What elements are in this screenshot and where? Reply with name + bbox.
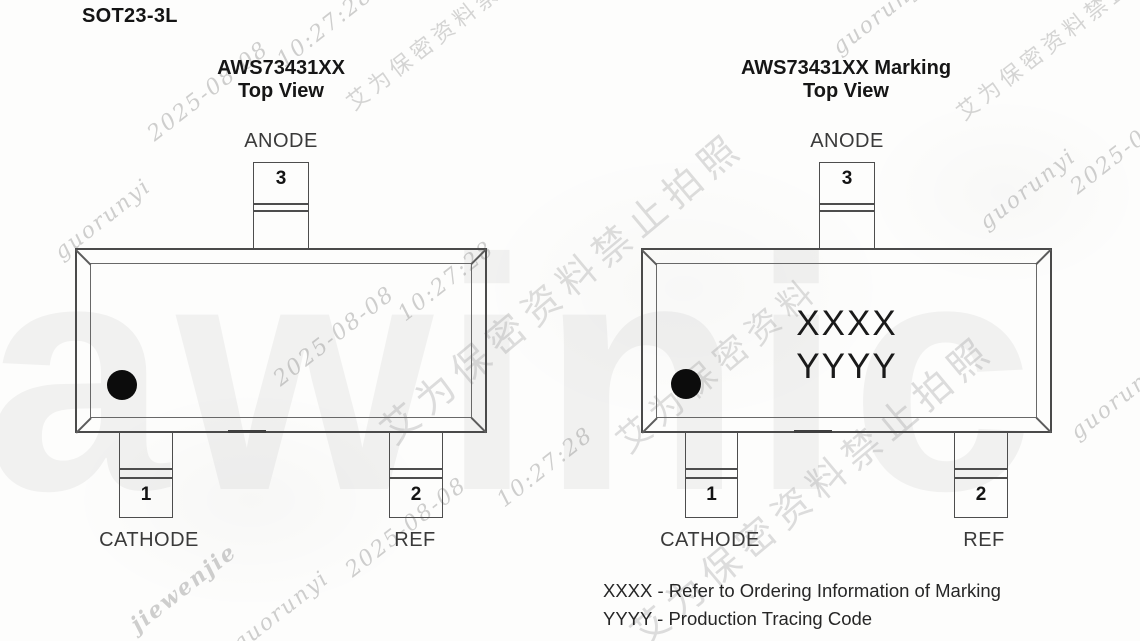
lead-bend-line <box>390 468 442 470</box>
marking-note-line1: XXXX - Refer to Ordering Information of … <box>603 580 1001 602</box>
right-diagram-subheading: Top View <box>696 80 996 103</box>
lead-bend-line <box>120 477 172 479</box>
pin3-number: 3 <box>254 168 308 190</box>
time-watermark: 10:27:28 <box>492 422 598 512</box>
lead-bend-line <box>686 477 737 479</box>
lead-bend-line <box>955 477 1007 479</box>
username-watermark: guorunyi <box>1066 354 1140 445</box>
date-watermark: 2025-08-08 <box>1066 89 1140 199</box>
lead-bend-line <box>120 468 172 470</box>
package-body-inner-outline <box>90 263 472 418</box>
anode-pin-label: ANODE <box>185 130 377 153</box>
cathode-pin-label: CATHODE <box>635 529 785 552</box>
username-watermark: guorunyi <box>828 0 935 60</box>
anode-pin-label: ANODE <box>751 130 943 153</box>
username-watermark: guorunyi <box>228 566 335 641</box>
page-title: SOT23-3L <box>82 5 178 28</box>
pin3-lead: 3 <box>819 162 875 250</box>
pin2-lead: 2 <box>954 432 1008 518</box>
marking-code-line2: YYYY <box>692 347 1002 387</box>
mold-gate-mark <box>228 430 266 433</box>
lead-bend-line <box>254 210 308 212</box>
lead-bend-line <box>686 468 737 470</box>
ref-pin-label: REF <box>909 529 1059 552</box>
lead-bend-line <box>820 210 874 212</box>
pin1-number: 1 <box>686 484 737 506</box>
pin2-number: 2 <box>390 484 442 506</box>
pin1-lead: 1 <box>119 432 173 518</box>
cathode-pin-label: CATHODE <box>74 529 224 552</box>
pin2-lead: 2 <box>389 432 443 518</box>
marking-note-line2: YYYY - Production Tracing Code <box>603 608 872 630</box>
marking-code-line1: XXXX <box>692 304 1002 344</box>
pin1-indicator-dot <box>107 370 137 400</box>
pin3-number: 3 <box>820 168 874 190</box>
lead-bend-line <box>390 477 442 479</box>
right-diagram-heading: AWS73431XX Marking <box>696 57 996 80</box>
ref-pin-label: REF <box>340 529 490 552</box>
pin1-number: 1 <box>120 484 172 506</box>
pin1-lead: 1 <box>685 432 738 518</box>
pin3-lead: 3 <box>253 162 309 250</box>
lead-bend-line <box>254 203 308 205</box>
mold-gate-mark <box>794 430 832 433</box>
pin2-number: 2 <box>955 484 1007 506</box>
username-watermark: guorunyi <box>975 144 1082 235</box>
datasheet-pinout-figure: awinic 艾为保密资料禁止拍照 艾为保密资料禁止拍照 艾为保密资料 艾为保密… <box>0 0 1140 641</box>
lead-bend-line <box>820 203 874 205</box>
lead-bend-line <box>955 468 1007 470</box>
left-diagram-subheading: Top View <box>131 80 431 103</box>
left-diagram-heading: AWS73431XX <box>131 57 431 80</box>
username-watermark: jiewenjie <box>126 538 243 637</box>
